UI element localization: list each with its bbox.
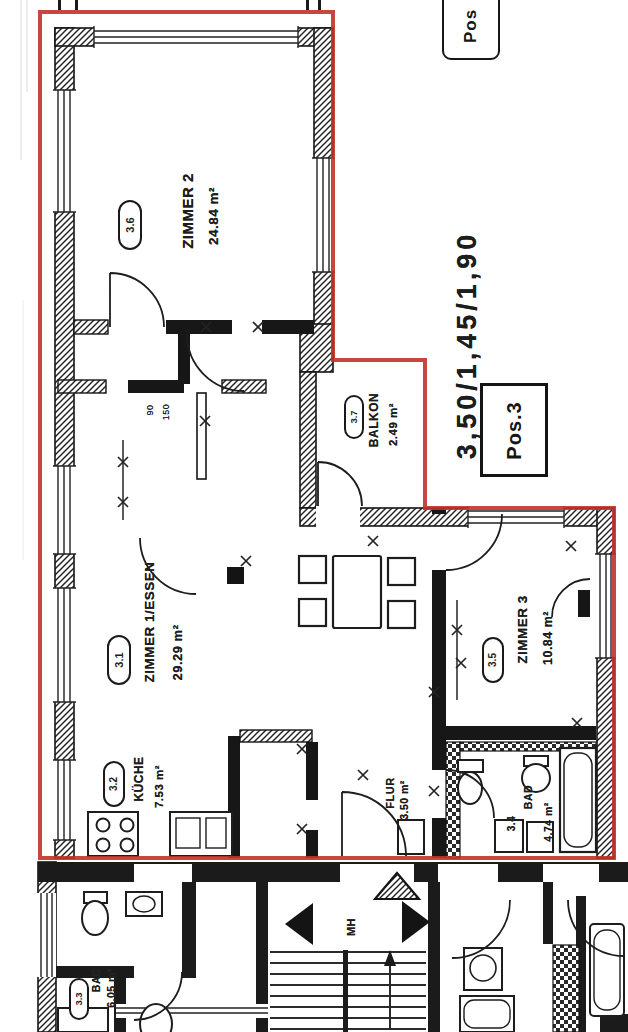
room-badge-zimmer3: 3.5 <box>482 637 504 683</box>
room-name-balkon: BALKON <box>367 377 381 463</box>
room-badge-kueche: 3.2 <box>103 761 125 807</box>
triangle-right-marker <box>402 901 430 943</box>
stairhall-tub <box>460 996 514 1032</box>
room-badge-bad-neighbor: 3.3 <box>69 978 89 1020</box>
neighbor-wc <box>82 892 108 935</box>
room-name-bad-neighbor: BAD <box>90 960 102 1000</box>
pos-tag-label: Pos <box>461 9 481 43</box>
door-dim-150: 150 <box>161 397 171 427</box>
pos3-tag-label: Pos.3 <box>502 401 525 459</box>
room-badge-zimmer1: 3.1 <box>107 635 131 685</box>
floor-plan-scan: 3.6 ZIMMER 2 24.84 m² 3.7 BALKON 2.49 m²… <box>0 0 628 1032</box>
dining-table-set <box>299 556 415 628</box>
stairhall-sink <box>464 948 502 990</box>
pos3-tag-box: Pos.3 <box>480 383 548 477</box>
room-area-bad: 4.74 m² <box>542 793 554 851</box>
room-name-zimmer2: ZIMMER 2 <box>178 151 196 271</box>
neighbor-sink <box>126 892 162 916</box>
room-area-balkon: 2.49 m² <box>387 382 400 468</box>
staircase <box>270 950 426 1032</box>
plan-linework <box>0 0 628 1032</box>
room-name-zimmer3: ZIMMER 3 <box>515 574 530 686</box>
triangle-left-marker <box>285 903 313 945</box>
room-name-flur: FLUR <box>384 766 396 820</box>
far-right-tub <box>590 924 624 1016</box>
stairwell-label: MH <box>345 912 357 942</box>
scan-artifacts <box>21 0 27 560</box>
stove <box>88 812 138 856</box>
room-name-kueche: KÜCHE <box>132 743 146 815</box>
room-name-bad: BAD <box>522 777 534 817</box>
room-area-kueche: 7.53 m² <box>153 747 166 827</box>
room-area-flur: 3.50 m² <box>398 768 410 832</box>
room-name-zimmer1: ZIMMER 1/ESSEN <box>142 543 158 701</box>
room-area-zimmer1: 29.29 m² <box>170 598 185 708</box>
kitchen-sink <box>170 812 232 856</box>
balcony-dimensions-annotation: 3,50/1,45/1,90 <box>454 209 480 481</box>
pos-tag-box: Pos <box>442 0 500 60</box>
room-badge-balkon: 3.7 <box>344 395 364 439</box>
room-badge-bad: 3.4 <box>506 809 517 839</box>
door-dim-90: 90 <box>145 398 155 422</box>
bath-wc <box>458 760 483 804</box>
room-area-zimmer3: 10.84 m² <box>541 588 555 688</box>
room-badge-zimmer2: 3.6 <box>118 200 142 250</box>
room-area-bad-neighbor: 6.05 m² <box>105 958 117 1018</box>
bathtub <box>560 748 596 852</box>
column <box>227 567 244 584</box>
stair-markers <box>285 873 430 945</box>
room-area-zimmer2: 24.84 m² <box>206 156 222 276</box>
